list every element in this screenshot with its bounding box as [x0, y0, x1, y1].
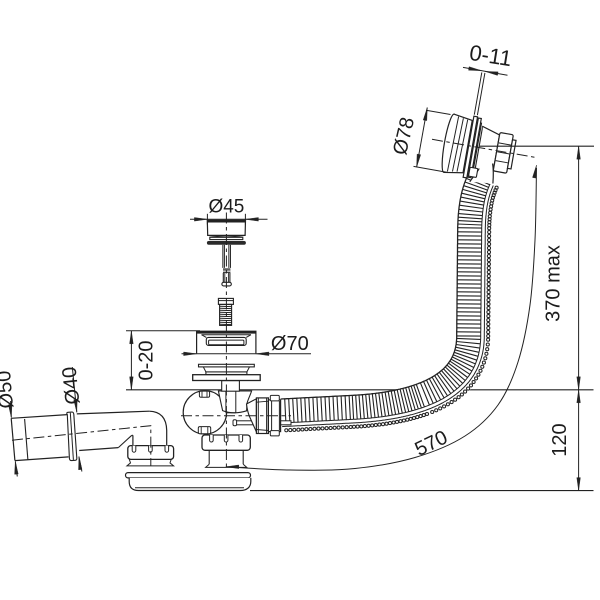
svg-text:Ø40: Ø40 [59, 366, 85, 406]
svg-text:370 max: 370 max [543, 245, 565, 322]
svg-text:0-20: 0-20 [136, 340, 158, 380]
svg-text:Ø70: Ø70 [271, 333, 309, 355]
svg-text:Ø78: Ø78 [389, 115, 419, 157]
svg-text:0-11: 0-11 [468, 40, 514, 71]
svg-text:120: 120 [549, 423, 571, 456]
svg-text:Ø50: Ø50 [0, 370, 18, 410]
svg-text:570: 570 [412, 426, 452, 460]
